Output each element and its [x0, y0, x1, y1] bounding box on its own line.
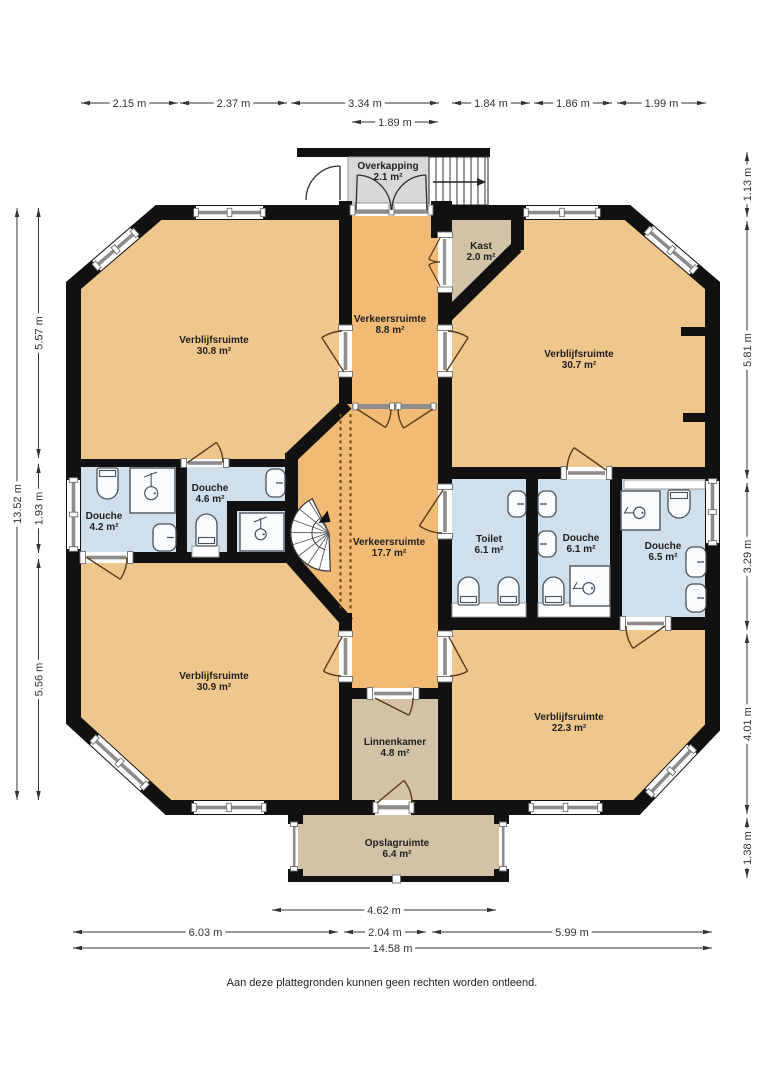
- svg-text:Toilet: Toilet: [476, 534, 503, 545]
- svg-text:5.99 m: 5.99 m: [555, 927, 589, 939]
- svg-text:4.8 m²: 4.8 m²: [381, 748, 411, 759]
- svg-text:2.15 m: 2.15 m: [113, 98, 147, 110]
- svg-text:Douche: Douche: [645, 541, 682, 552]
- svg-text:6.1 m²: 6.1 m²: [567, 544, 597, 555]
- svg-text:2.0 m²: 2.0 m²: [467, 252, 497, 263]
- svg-text:Verblijfsruimte: Verblijfsruimte: [179, 671, 249, 682]
- svg-text:Douche: Douche: [563, 533, 600, 544]
- svg-text:Aan deze plattegronden kunnen: Aan deze plattegronden kunnen geen recht…: [227, 977, 538, 989]
- svg-text:3.34 m: 3.34 m: [348, 98, 382, 110]
- svg-text:30.9 m²: 30.9 m²: [197, 682, 232, 693]
- svg-text:Verblijfsruimte: Verblijfsruimte: [534, 712, 604, 723]
- svg-text:2.04 m: 2.04 m: [368, 927, 402, 939]
- svg-text:Verblijfsruimte: Verblijfsruimte: [179, 335, 249, 346]
- svg-text:Douche: Douche: [192, 483, 229, 494]
- svg-text:Verblijfsruimte: Verblijfsruimte: [544, 349, 614, 360]
- svg-text:4.01 m: 4.01 m: [742, 707, 754, 741]
- svg-text:Verkeersruimte: Verkeersruimte: [353, 537, 426, 548]
- svg-text:4.2 m²: 4.2 m²: [90, 522, 120, 533]
- svg-text:1.93 m: 1.93 m: [33, 492, 45, 526]
- svg-text:6.1 m²: 6.1 m²: [475, 545, 505, 556]
- svg-text:1.89 m: 1.89 m: [378, 117, 412, 129]
- svg-text:5.56 m: 5.56 m: [33, 663, 45, 697]
- svg-text:1.84 m: 1.84 m: [474, 98, 508, 110]
- svg-text:1.38 m: 1.38 m: [742, 831, 754, 865]
- svg-text:6.5 m²: 6.5 m²: [649, 552, 679, 563]
- svg-text:Verkeersruimte: Verkeersruimte: [354, 314, 427, 325]
- svg-text:Kast: Kast: [470, 241, 492, 252]
- svg-text:22.3 m²: 22.3 m²: [552, 723, 587, 734]
- svg-text:4.6 m²: 4.6 m²: [196, 494, 226, 505]
- svg-text:13.52 m: 13.52 m: [12, 484, 24, 524]
- svg-text:2.37 m: 2.37 m: [217, 98, 251, 110]
- svg-text:3.29 m: 3.29 m: [742, 540, 754, 574]
- svg-text:Overkapping: Overkapping: [357, 161, 418, 172]
- svg-text:1.86 m: 1.86 m: [556, 98, 590, 110]
- svg-text:5.81 m: 5.81 m: [742, 333, 754, 367]
- svg-text:2.1 m²: 2.1 m²: [374, 172, 404, 183]
- svg-text:Linnenkamer: Linnenkamer: [364, 737, 426, 748]
- svg-text:1.99 m: 1.99 m: [645, 98, 679, 110]
- svg-text:Douche: Douche: [86, 511, 123, 522]
- svg-text:6.03 m: 6.03 m: [189, 927, 223, 939]
- svg-text:6.4 m²: 6.4 m²: [383, 849, 413, 860]
- svg-text:14.58 m: 14.58 m: [373, 943, 413, 955]
- svg-text:1.13 m: 1.13 m: [742, 168, 754, 202]
- svg-text:17.7 m²: 17.7 m²: [372, 548, 407, 559]
- svg-text:8.8 m²: 8.8 m²: [376, 325, 406, 336]
- svg-text:Opslagruimte: Opslagruimte: [365, 838, 430, 849]
- svg-text:30.7 m²: 30.7 m²: [562, 360, 597, 371]
- svg-text:30.8 m²: 30.8 m²: [197, 346, 232, 357]
- svg-text:5.57 m: 5.57 m: [33, 316, 45, 350]
- svg-text:4.62 m: 4.62 m: [367, 905, 401, 917]
